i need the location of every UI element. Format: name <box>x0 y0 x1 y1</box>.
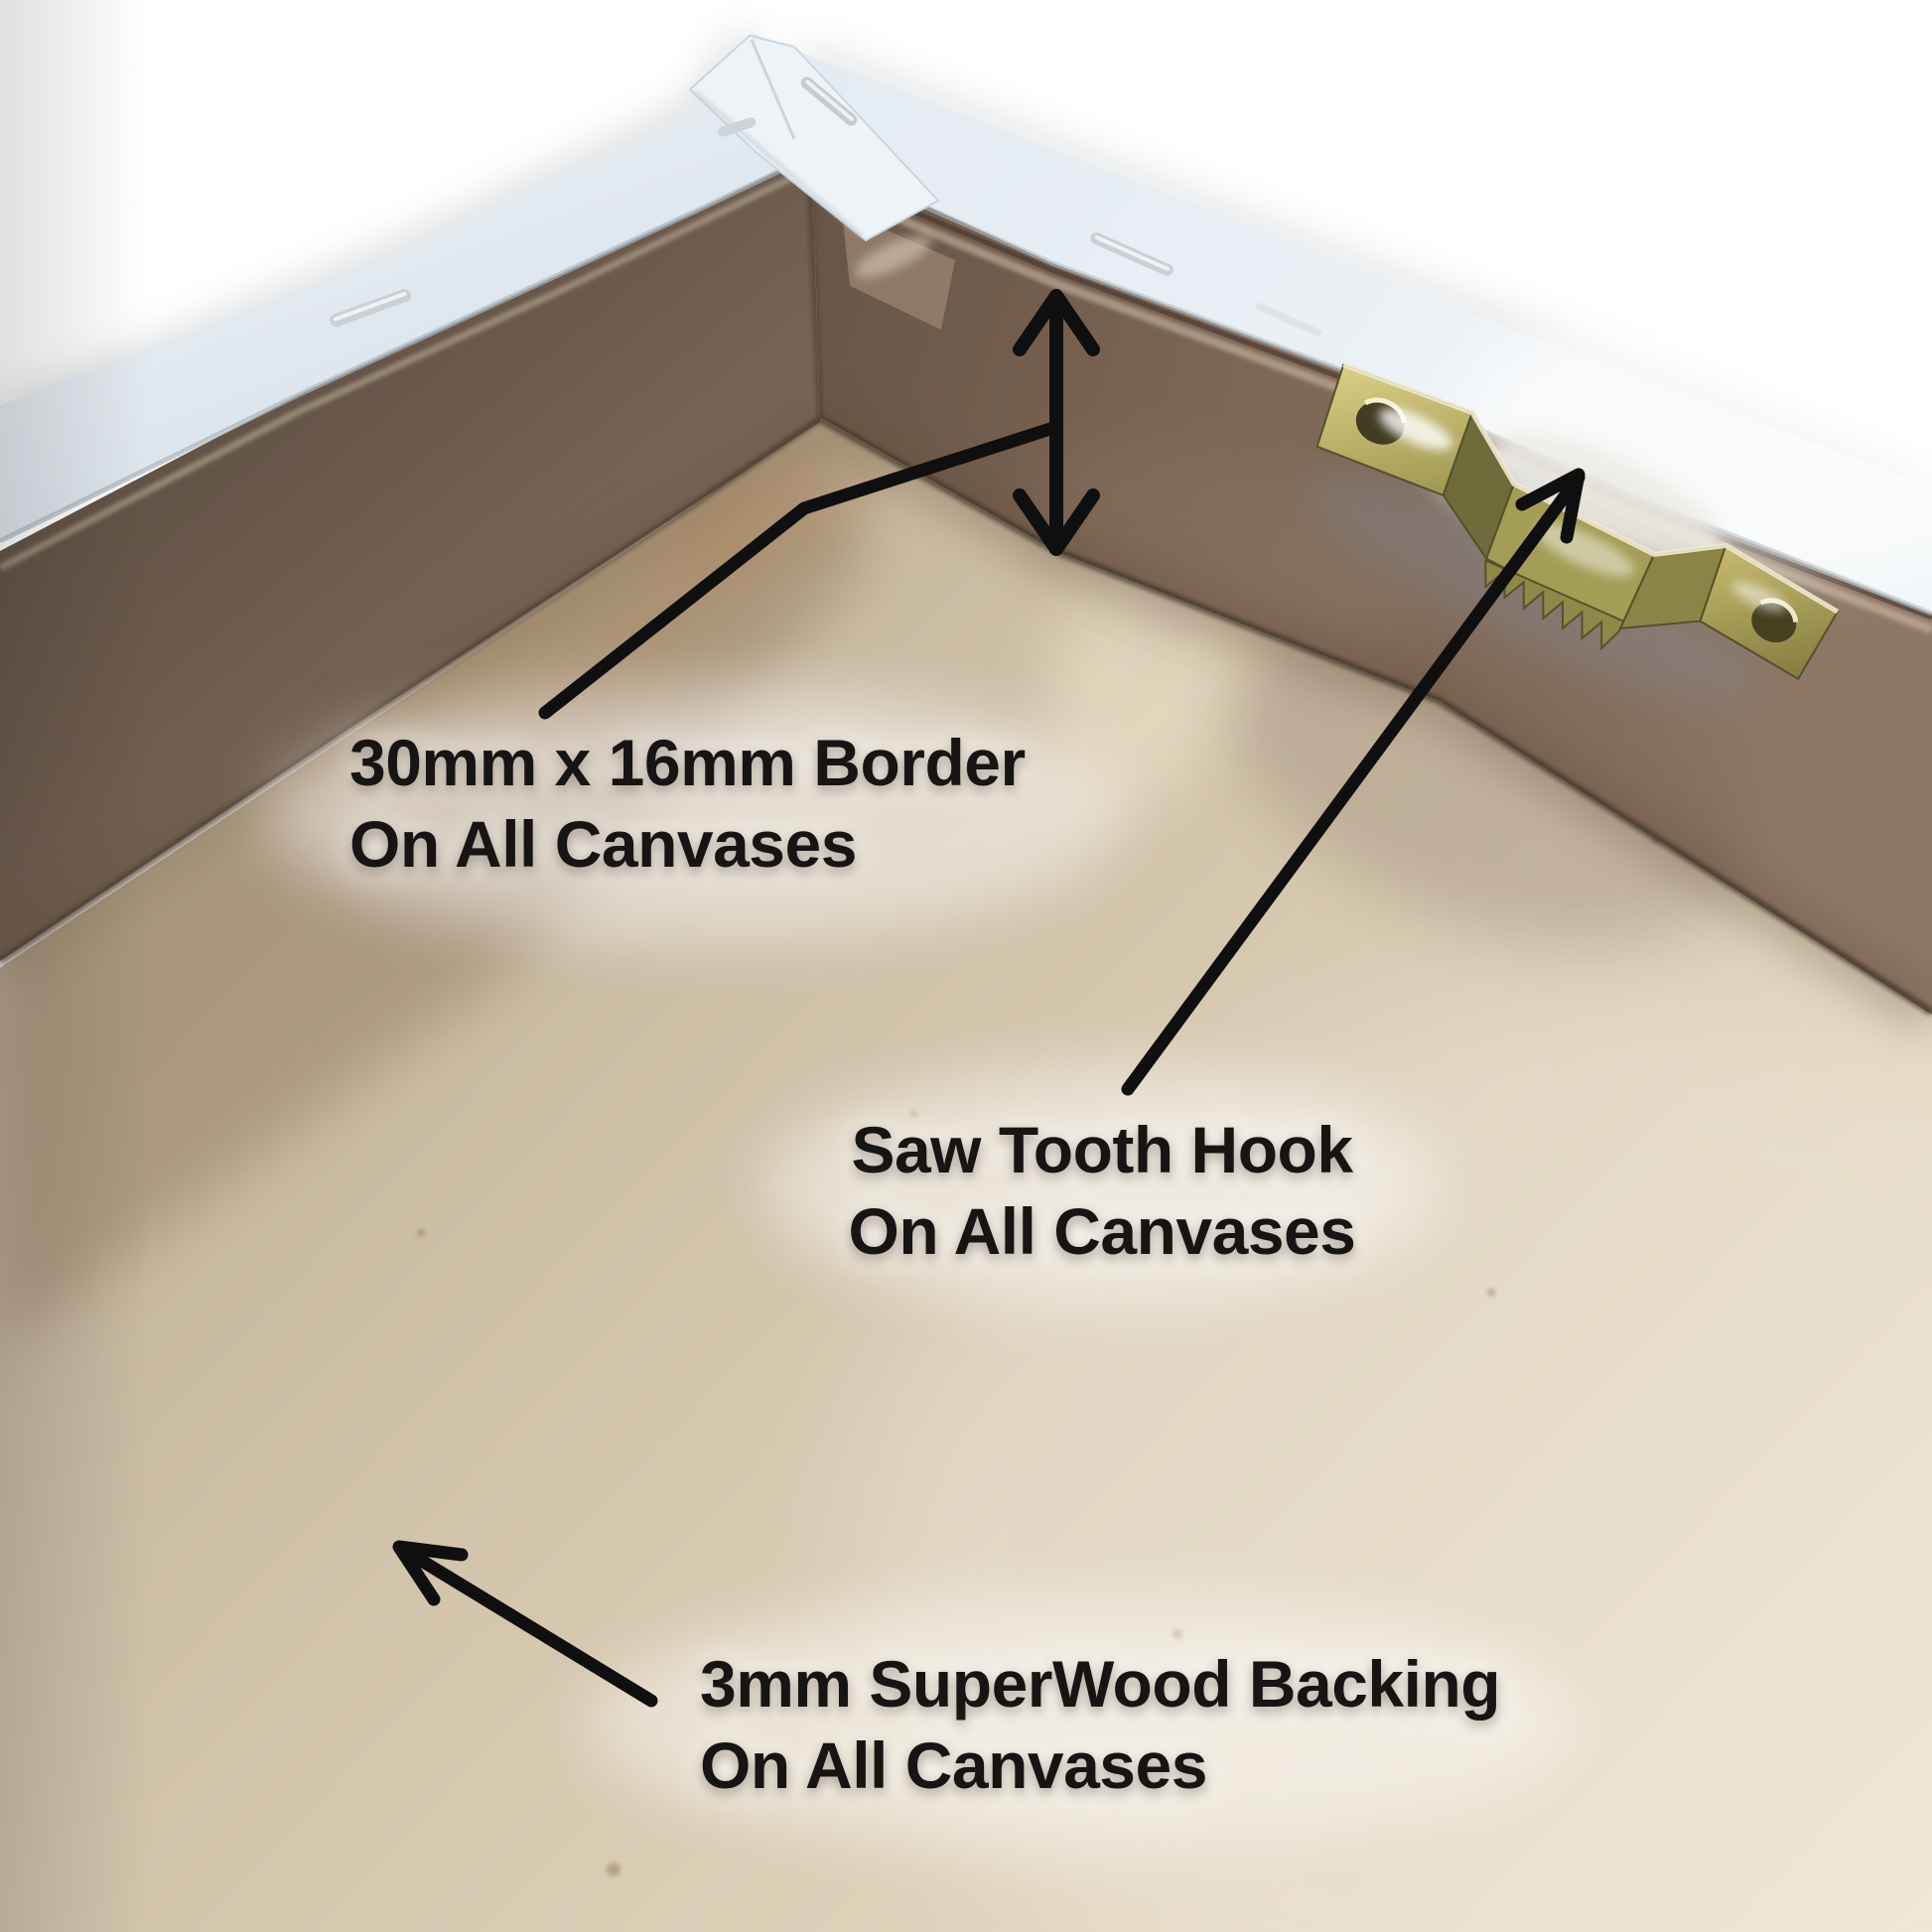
backing-board-label: 3mm SuperWood Backing On All Canvases <box>700 1643 1500 1806</box>
saw-tooth-hook-label-line2: On All Canvases <box>849 1190 1356 1272</box>
border-size-label-line1: 30mm x 16mm Border <box>349 722 1026 803</box>
annotated-canvas-photo: 30mm x 16mm Border On All Canvases Saw T… <box>0 0 1932 1932</box>
border-size-label: 30mm x 16mm Border On All Canvases <box>349 722 1026 885</box>
saw-tooth-hook-label-line1: Saw Tooth Hook <box>849 1109 1356 1190</box>
photo-vignette <box>0 0 149 1932</box>
saw-tooth-hook-label: Saw Tooth Hook On All Canvases <box>849 1109 1356 1272</box>
border-size-label-line2: On All Canvases <box>349 803 1026 885</box>
backing-board-label-line2: On All Canvases <box>700 1725 1500 1806</box>
backing-board-label-line1: 3mm SuperWood Backing <box>700 1643 1500 1725</box>
